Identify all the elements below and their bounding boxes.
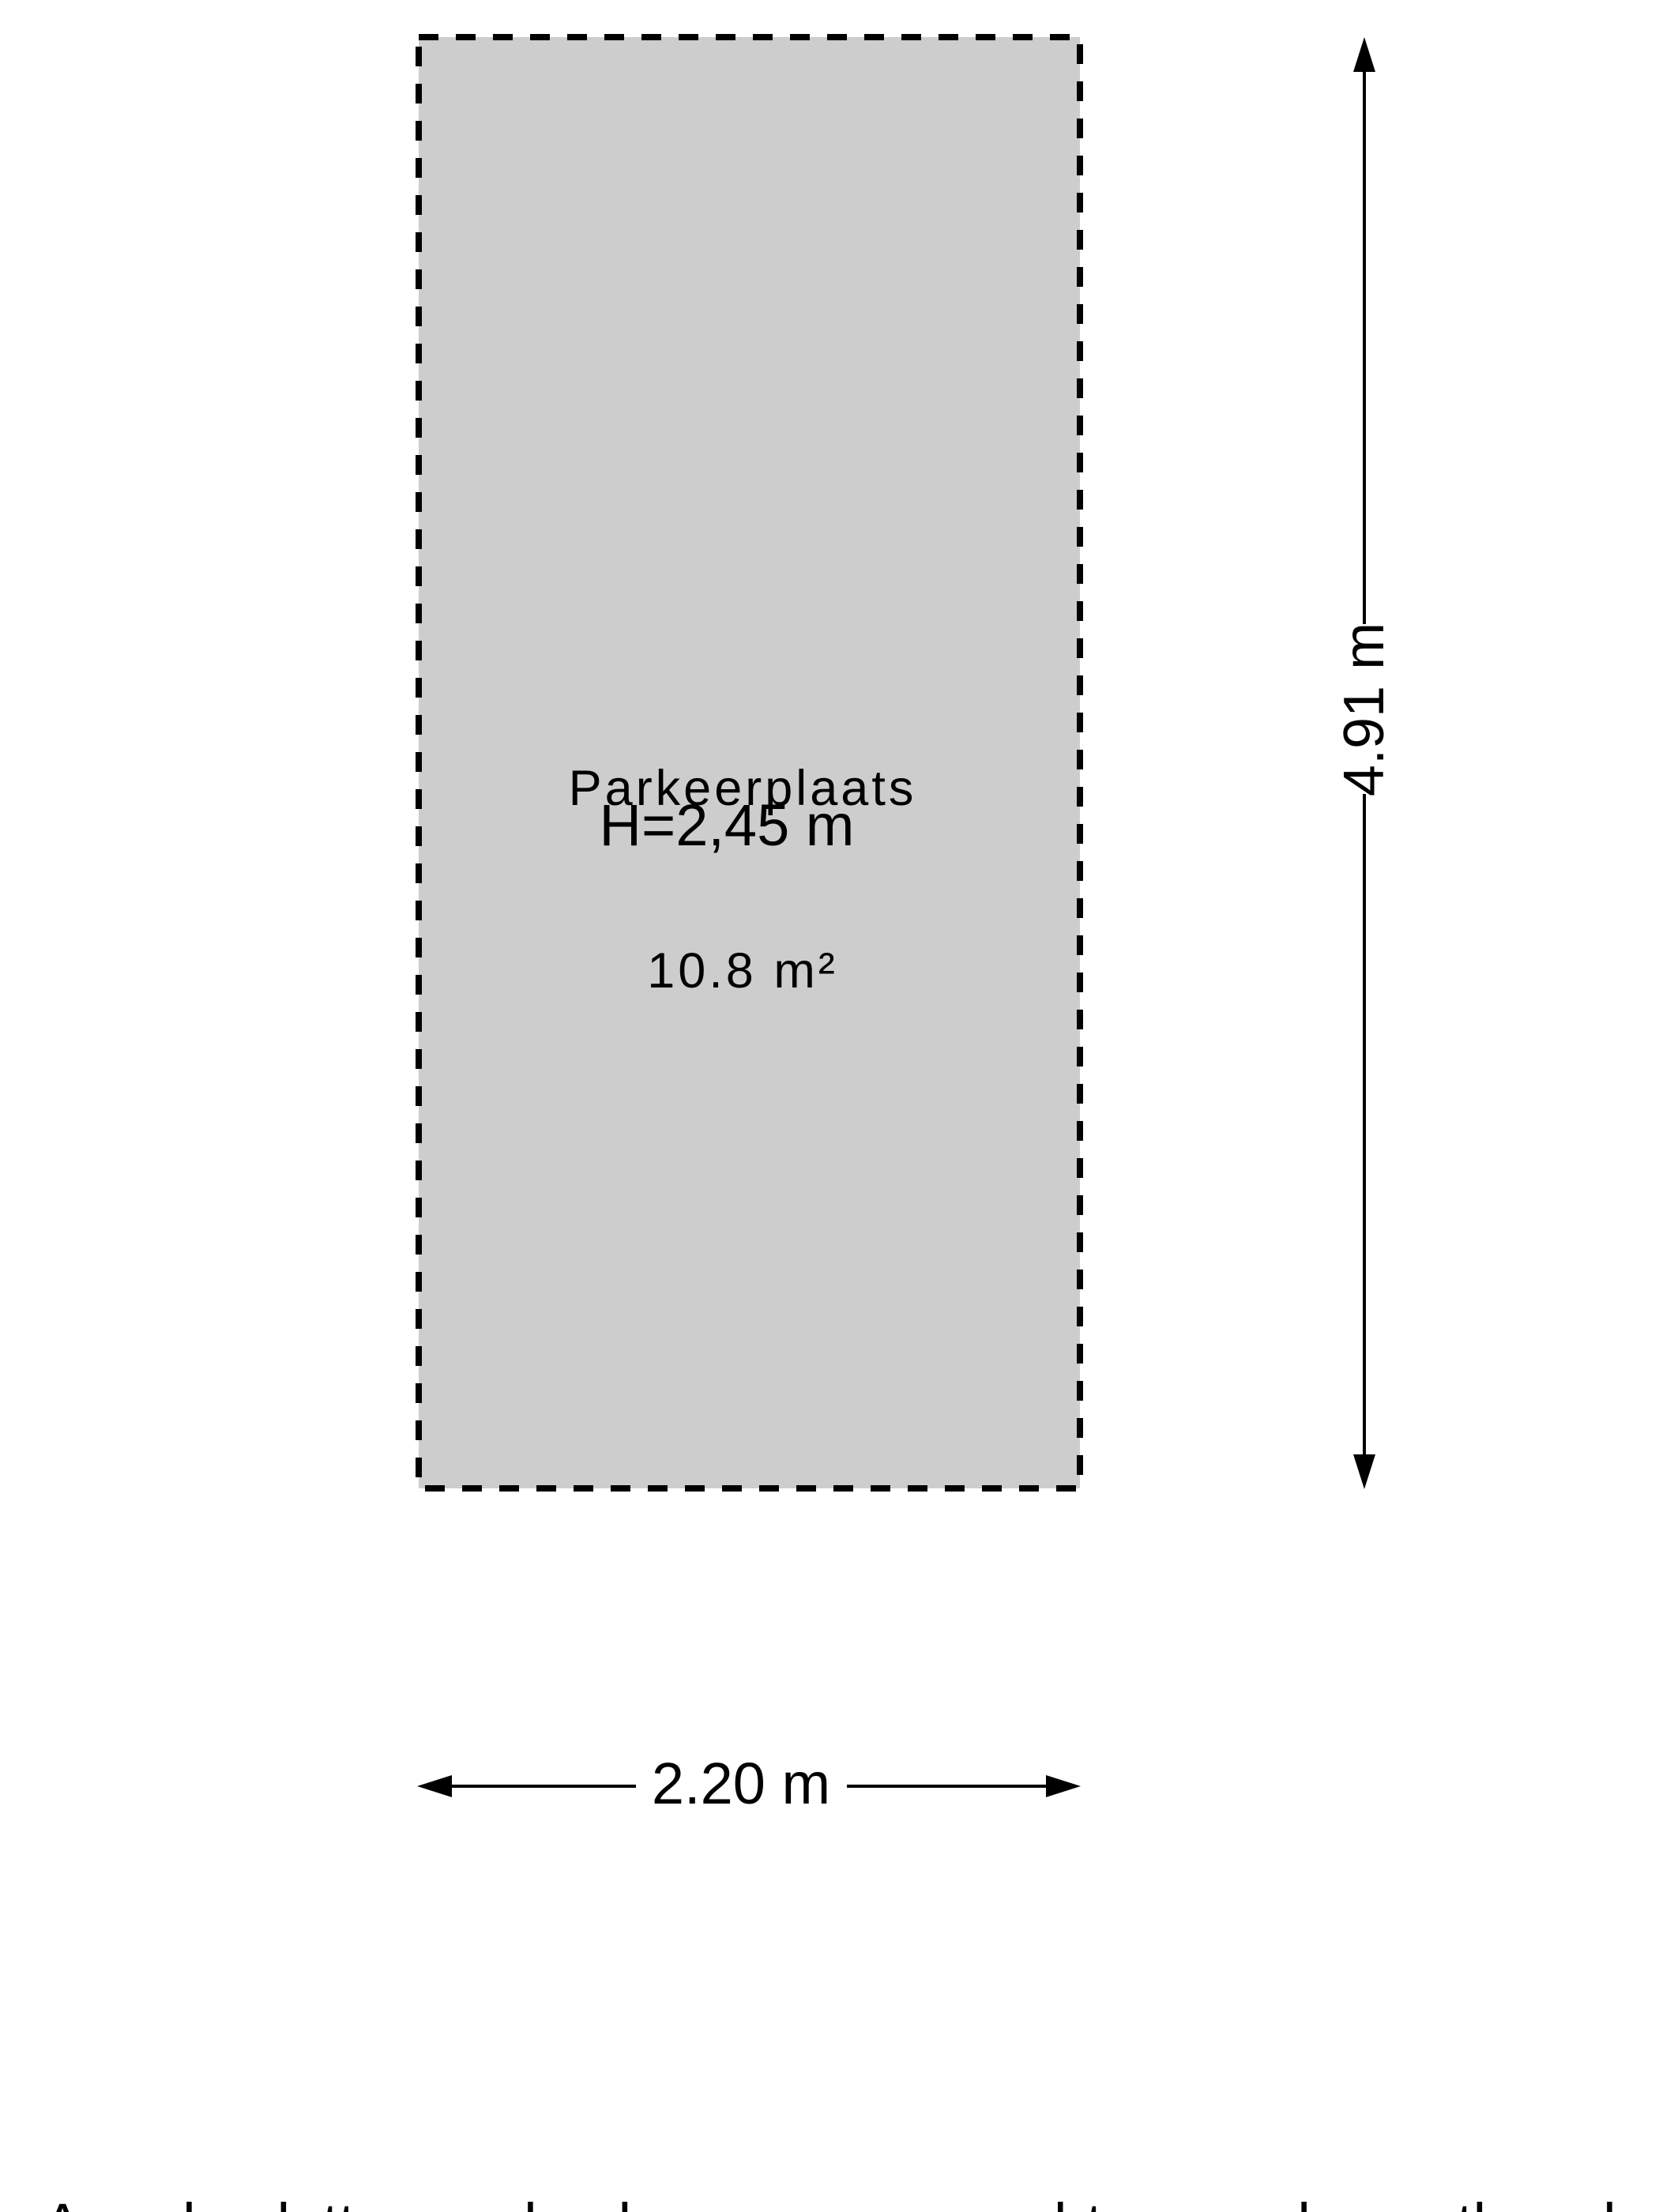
width-dimension-label: 2.20 m bbox=[652, 1755, 830, 1813]
width-dimension-arrow-right-icon bbox=[1046, 1775, 1081, 1797]
ceiling-height-label: H=2,45 m bbox=[600, 796, 855, 855]
floorplan-canvas: Parkeerplaats 10.8 m² H=2,45 m 2.20 m 4.… bbox=[0, 0, 1659, 2212]
width-dimension-arrow-left-icon bbox=[417, 1775, 452, 1797]
room-area: 10.8 m² bbox=[569, 941, 917, 1002]
height-dimension-arrow-up-icon bbox=[1353, 37, 1375, 72]
height-dimension-label: 4.91 m bbox=[1336, 623, 1393, 796]
room-label: Parkeerplaats 10.8 m² bbox=[569, 637, 917, 1123]
footer-disclaimer: Aan de plattegronden kunnen geen rechten… bbox=[0, 2191, 1659, 2212]
height-dimension-arrow-down-icon bbox=[1353, 1454, 1375, 1489]
footer: Aan de plattegronden kunnen geen rechten… bbox=[0, 2059, 1659, 2212]
